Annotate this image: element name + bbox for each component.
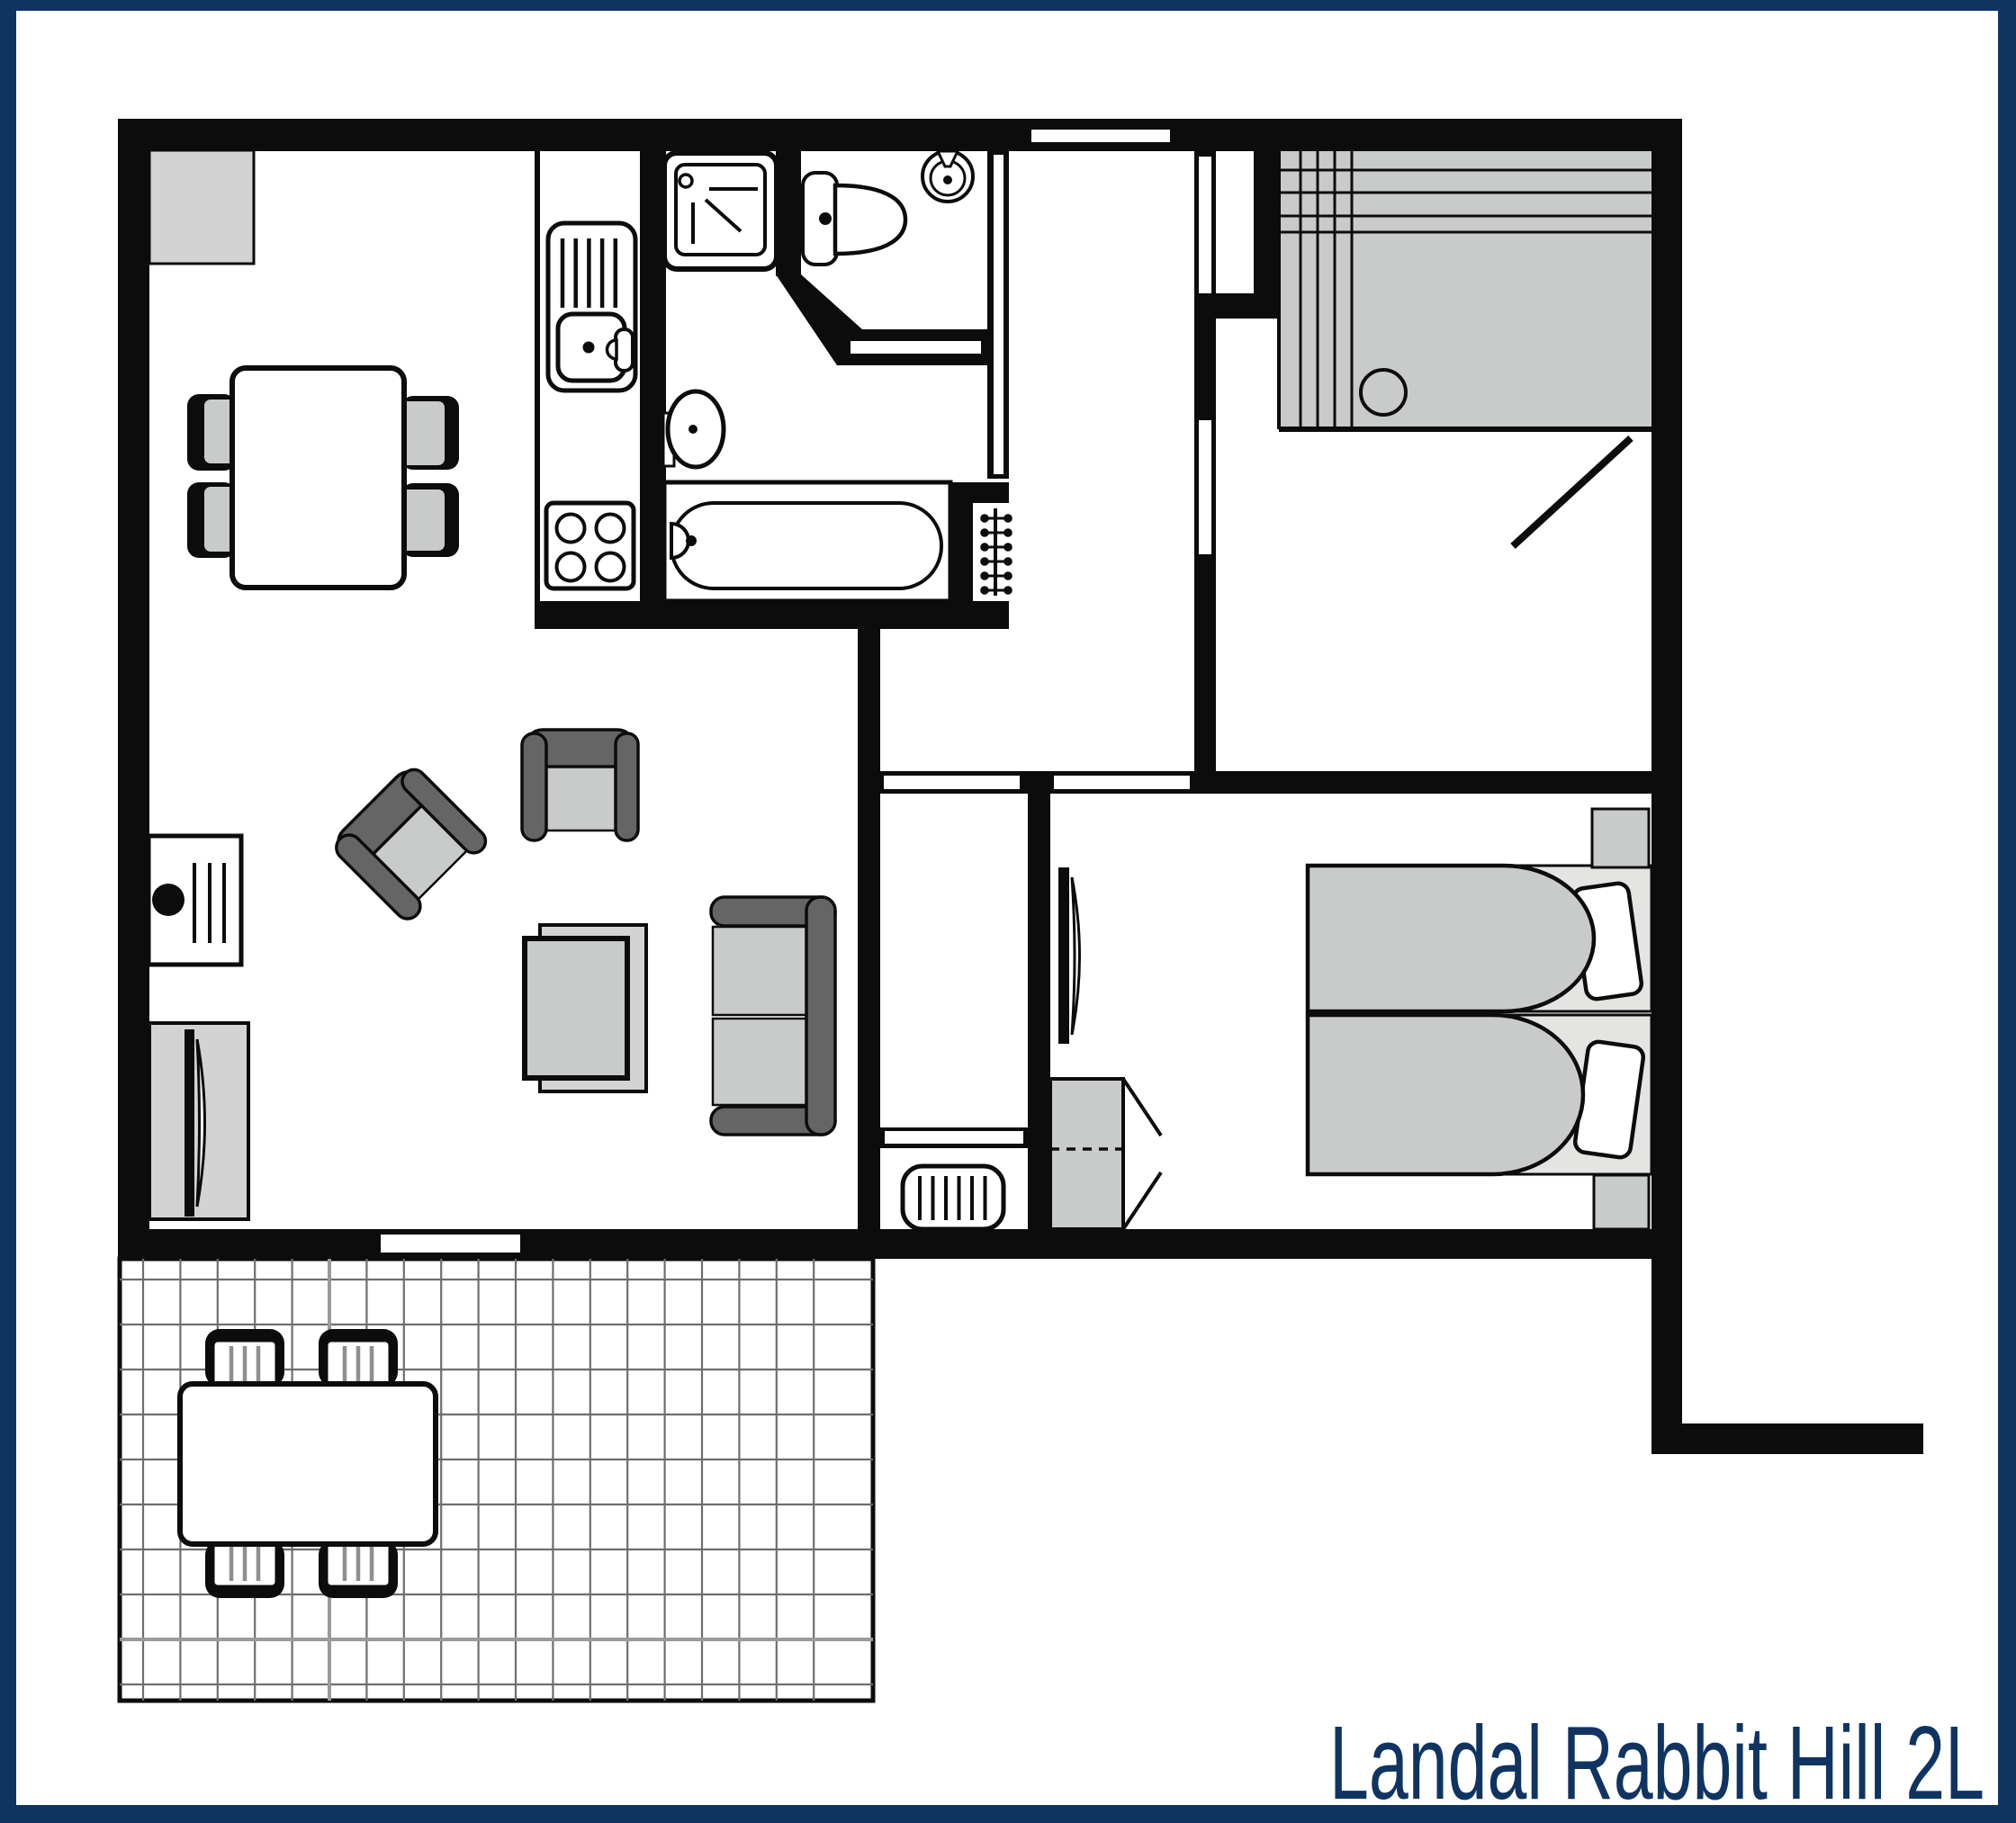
svg-text:Landal Rabbit Hill 2L: Landal Rabbit Hill 2L [1329,1704,1984,1821]
